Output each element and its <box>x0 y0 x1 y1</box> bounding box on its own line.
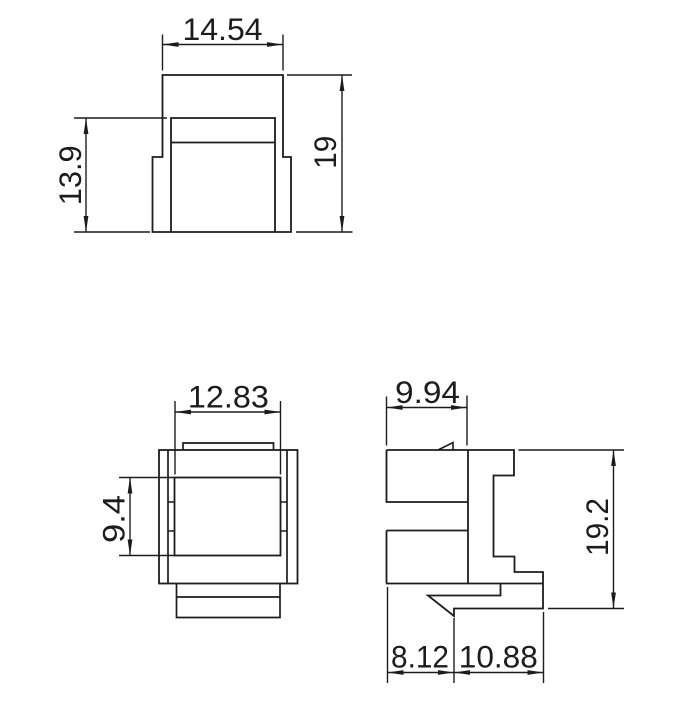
svg-text:19.2: 19.2 <box>579 498 615 556</box>
svg-text:10.88: 10.88 <box>459 639 538 675</box>
svg-text:13.9: 13.9 <box>52 145 88 205</box>
svg-text:9.94: 9.94 <box>395 374 460 410</box>
svg-text:9.4: 9.4 <box>96 495 132 543</box>
svg-text:12.83: 12.83 <box>188 379 269 415</box>
svg-text:8.12: 8.12 <box>391 639 449 675</box>
svg-text:14.54: 14.54 <box>183 11 263 47</box>
svg-text:19: 19 <box>307 136 343 169</box>
